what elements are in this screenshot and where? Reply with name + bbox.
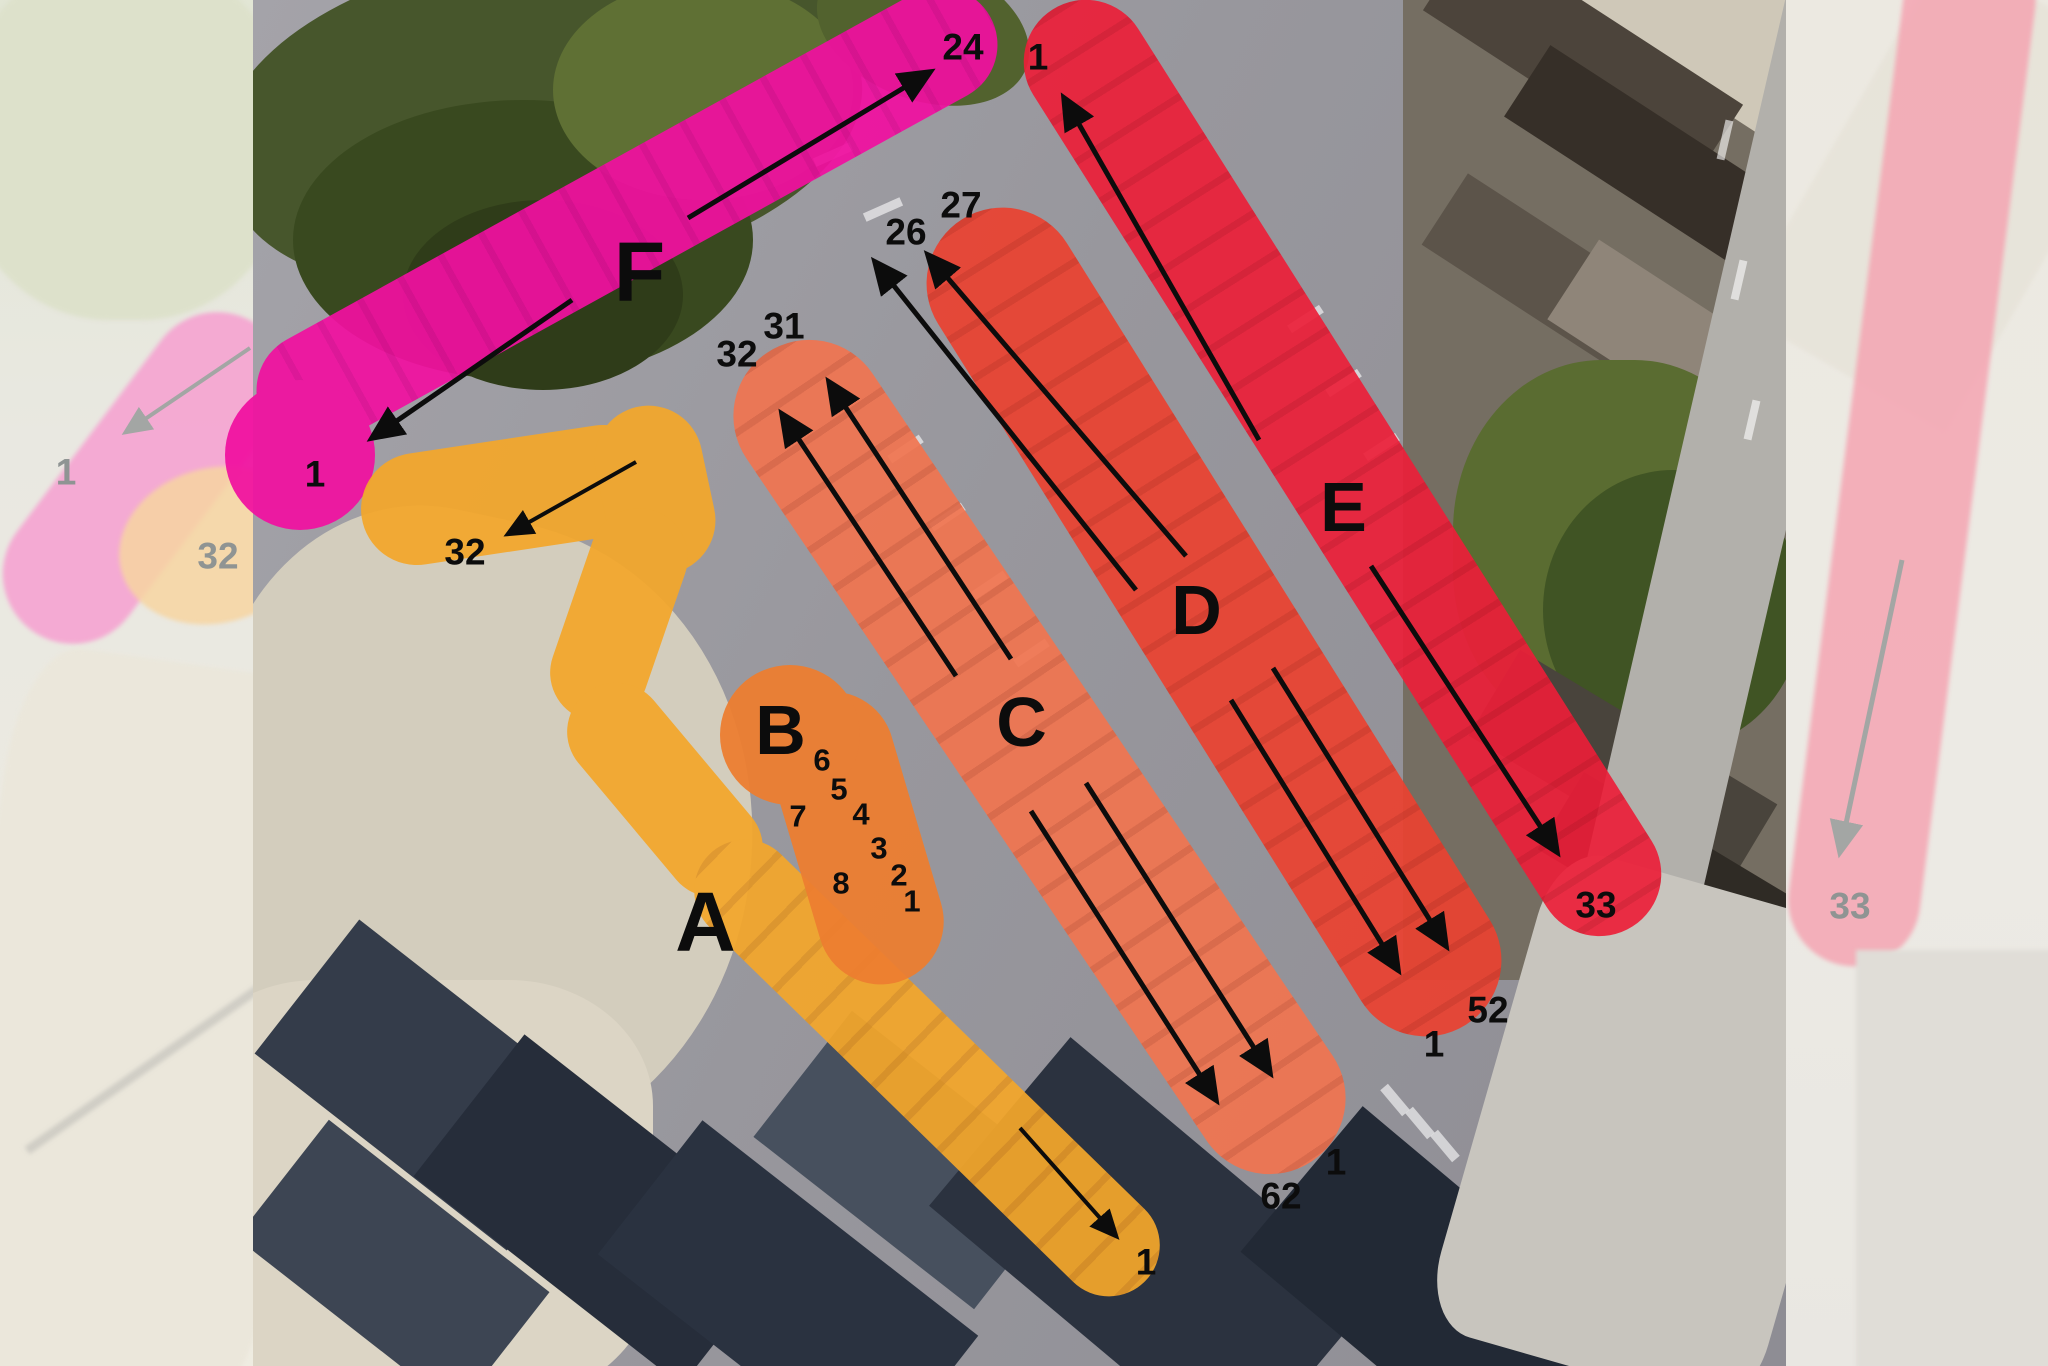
spot-zone-b-1: 1 bbox=[903, 886, 920, 917]
zone-c-arrow-down-1 bbox=[1031, 811, 1216, 1100]
faded-marker-left-1: 1 bbox=[56, 454, 77, 491]
spot-zone-b-3: 3 bbox=[870, 833, 887, 864]
zone-f-arrow-down bbox=[372, 300, 572, 438]
marker-zone-e-1: 1 bbox=[1028, 39, 1049, 76]
faded-right-arrow bbox=[1840, 560, 1902, 852]
marker-zone-d-1: 1 bbox=[1424, 1026, 1445, 1063]
zone-f-arrow-up bbox=[688, 72, 930, 218]
spot-zone-b-4: 4 bbox=[852, 799, 869, 830]
marker-zone-c-32: 32 bbox=[716, 336, 757, 373]
marker-zone-c-62: 62 bbox=[1260, 1178, 1301, 1215]
marker-zone-d-26: 26 bbox=[885, 214, 926, 251]
zone-d-arrow-down-1 bbox=[1231, 700, 1398, 970]
faded-marker-left-32: 32 bbox=[197, 538, 238, 575]
spot-zone-b-5: 5 bbox=[830, 774, 847, 805]
zone-b-label: B bbox=[755, 695, 807, 765]
zone-a-arrow-tail bbox=[1020, 1128, 1116, 1236]
faded-marker-right-33: 33 bbox=[1829, 888, 1870, 925]
zone-d-arrow-up-2 bbox=[928, 255, 1186, 556]
marker-zone-e-33: 33 bbox=[1575, 887, 1616, 924]
zone-d-arrow-up-1 bbox=[875, 262, 1136, 590]
marker-zone-f-1: 1 bbox=[305, 456, 326, 493]
zone-c-arrow-down-2 bbox=[1086, 783, 1270, 1073]
zone-e-arrow-up bbox=[1064, 98, 1259, 440]
zone-a-arrow-top bbox=[508, 462, 636, 534]
zone-e-arrow-down bbox=[1371, 566, 1557, 852]
marker-zone-c-31: 31 bbox=[763, 308, 804, 345]
marker-zone-a-32: 32 bbox=[444, 534, 485, 571]
zone-e-label: E bbox=[1320, 472, 1368, 542]
spot-zone-b-6: 6 bbox=[813, 745, 830, 776]
marker-zone-d-52: 52 bbox=[1467, 992, 1508, 1029]
marker-zone-d-27: 27 bbox=[940, 187, 981, 224]
zone-c-label: C bbox=[996, 687, 1048, 757]
marker-zone-c-1: 1 bbox=[1326, 1144, 1347, 1181]
zone-d-label: D bbox=[1171, 575, 1223, 645]
carpark-zone-map: F A B C D E 24 1 32 1 32 31 62 1 26 27 1… bbox=[0, 0, 2048, 1366]
spot-zone-b-7: 7 bbox=[789, 801, 806, 832]
zone-a-label: A bbox=[675, 880, 737, 964]
spot-zone-b-8: 8 bbox=[832, 868, 849, 899]
zone-f-label: F bbox=[614, 230, 666, 314]
marker-zone-a-1: 1 bbox=[1136, 1244, 1157, 1281]
faded-left-arrow bbox=[126, 348, 250, 432]
zone-c-arrow-up-1 bbox=[782, 414, 956, 676]
marker-zone-f-24: 24 bbox=[942, 29, 983, 66]
